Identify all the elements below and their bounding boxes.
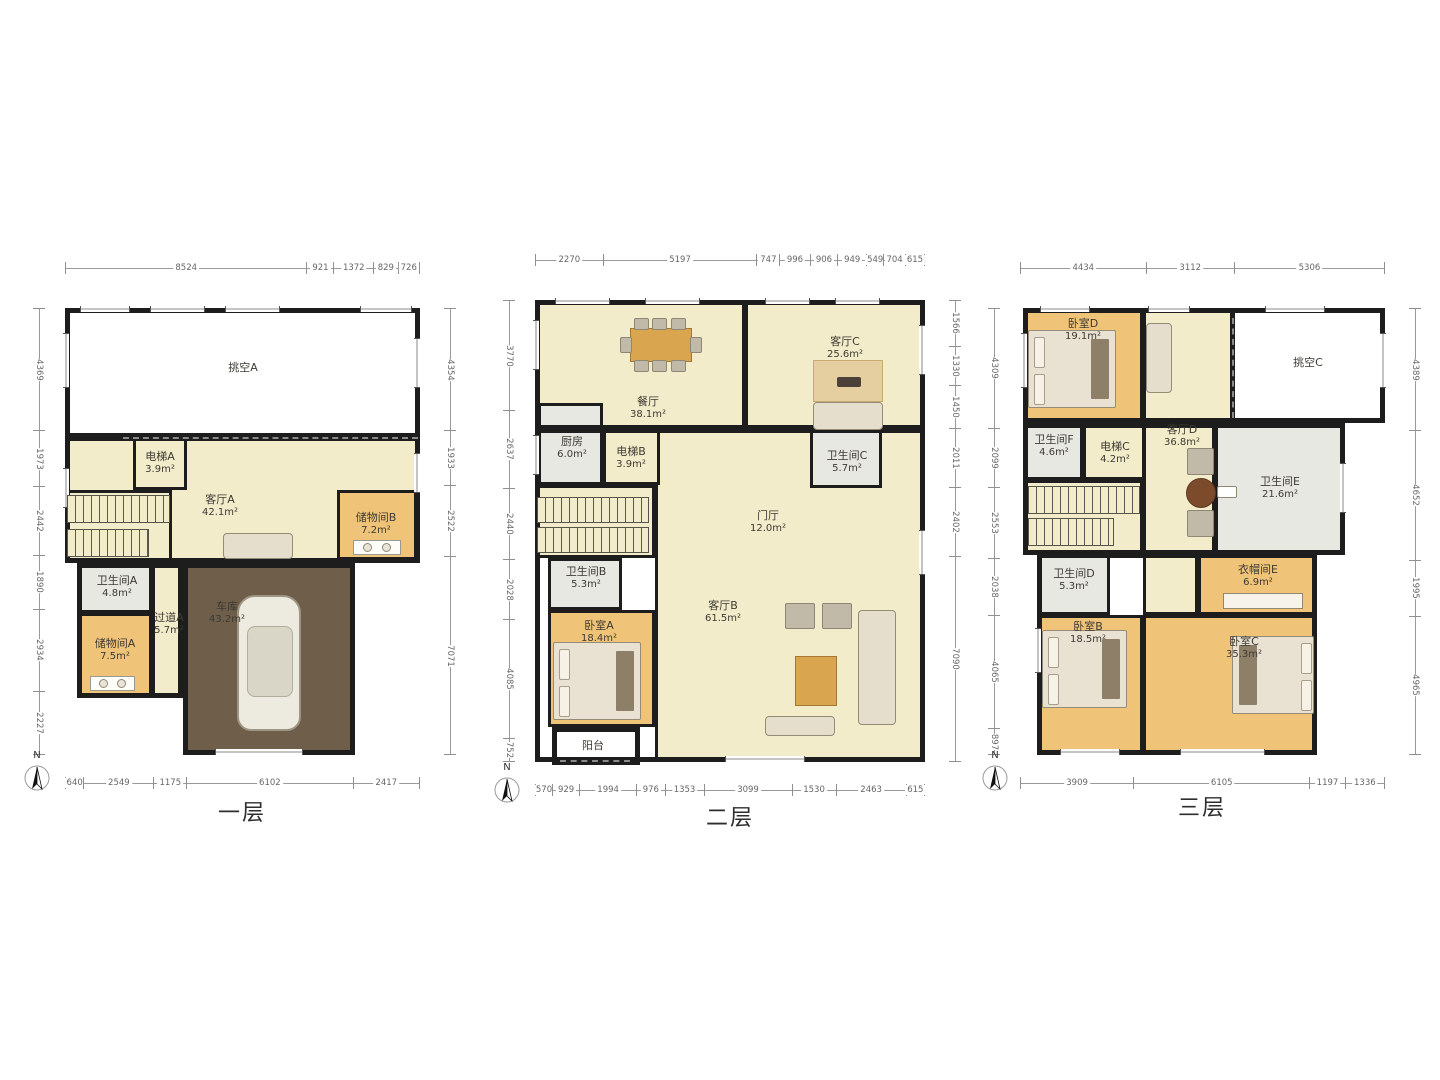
window-icon [215,749,303,755]
dimension-value: 2227 [32,712,46,734]
window-icon [1180,749,1265,755]
chair-icon [634,318,649,330]
dimension-segment: 5197 [603,254,757,266]
dimension-value: 1933 [443,447,457,469]
window-icon [1060,749,1120,755]
car-icon [237,595,301,731]
pillow-icon [559,686,570,717]
dimension-value: 4065 [987,661,1001,683]
floor-title-2: 二层 [706,800,754,832]
room-bath-c [810,428,882,488]
bench-icon [765,716,835,736]
dimension-value: 2402 [948,511,962,533]
dimension-strip-top: 22705197747996906949549704615 [535,254,925,266]
armchair-icon [785,603,815,629]
window-icon [765,298,810,304]
window-icon [1035,628,1041,673]
room-bath-d [1037,553,1110,615]
dimension-value: 747 [758,255,778,265]
armchair-icon [1187,448,1214,475]
room-bath-f [1023,423,1083,480]
dimension-value: 2417 [373,778,399,788]
table-top-icon [630,328,692,362]
dimension-segment: 4434 [1020,262,1146,274]
dimension-segment: 726 [398,262,420,274]
window-icon [1040,306,1090,312]
dimension-value: 5197 [667,255,693,265]
bed-icon [1028,330,1116,408]
dimension-segment: 2637 [503,410,515,487]
dimension-segment: 2038 [988,558,1000,615]
dimension-value: 3909 [1064,778,1090,788]
dimension-segment: 6102 [186,777,352,789]
floor-title-1: 一层 [218,795,266,827]
dimension-segment: 549 [866,254,883,266]
dimension-value: 2442 [32,510,46,532]
dimension-value: 1450 [948,396,962,418]
washer-icon [353,540,401,555]
dimension-segment: 1336 [1345,777,1385,789]
window-icon [414,338,420,388]
dimension-value: 976 [641,785,661,795]
bed-icon [553,642,641,720]
dimension-value: 829 [376,263,396,273]
armchair-icon [1187,510,1214,537]
dimension-segment: 2270 [535,254,603,266]
dimension-value: 3099 [735,785,761,795]
dimension-value: 949 [842,255,862,265]
dimension-strip-left: 37702637244020284085752 [503,300,515,762]
room-corridor-a [152,563,183,698]
dimension-segment: 4389 [1409,308,1421,430]
dimension-segment: 2028 [503,559,515,619]
dimension-segment: 2402 [949,487,961,557]
room-elevator-b [603,428,660,485]
pillow-icon [1048,674,1059,705]
pillow-icon [1301,680,1312,711]
dining-table-icon [620,318,700,370]
chair-icon [671,360,686,372]
dimension-value: 3112 [1177,263,1203,273]
dimension-segment: 704 [883,254,905,266]
dimension-segment: 1995 [1409,560,1421,616]
wardrobe-icon [1223,593,1303,609]
compass-circle-icon [492,773,522,807]
dimension-segment: 615 [905,254,925,266]
dimension-value: 1353 [672,785,698,795]
chair-icon [690,337,702,353]
dimension-value: 2522 [443,510,457,532]
dimension-segment: 2522 [444,485,456,556]
dimension-value: 1994 [595,785,621,795]
chair-icon [652,318,667,330]
bed-icon [1232,636,1314,714]
dimension-segment: 7090 [949,556,961,762]
window-icon [1021,333,1027,388]
window-icon [360,306,412,312]
dimension-value: 1995 [1408,577,1422,599]
window-icon [919,530,925,575]
stairs-icon [1028,518,1114,546]
north-compass-icon: N [492,762,522,810]
chair-icon [620,337,632,353]
pillow-icon [1301,643,1312,674]
dimension-value: 5306 [1297,263,1323,273]
dimension-value: 2553 [987,512,1001,534]
dimension-segment: 615 [906,784,925,796]
blanket-icon [616,651,634,711]
washer-icon [90,676,135,691]
dimension-segment: 7071 [444,556,456,755]
dimension-segment: 1197 [1309,777,1344,789]
dimension-segment: 4354 [444,308,456,430]
pillow-icon [1034,374,1045,405]
window-icon [919,325,925,375]
blanket-icon [1239,645,1257,705]
window-icon [225,306,280,312]
dimension-value: 3770 [502,345,516,367]
stairs-icon [1028,486,1140,514]
room-void-c [1232,308,1385,423]
dimension-value: 4354 [443,359,457,381]
dimension-strip-left: 436919732442189029342227 [33,308,45,755]
window-icon [533,435,539,475]
compass-circle-icon [980,761,1010,795]
dimension-segment: 1530 [792,784,836,796]
dimension-value: 921 [310,263,330,273]
dimension-value: 2637 [502,439,516,461]
tv-rug-icon [813,360,883,402]
floor-plan-3: 卧室D19.1m²挑空C客厅D36.8m²卫生间F4.6m²电梯C4.2m²卫生… [1020,308,1385,755]
floor-plan-2: 餐厅38.1m²客厅C25.6m²客厅B61.5m²厨房6.0m²电梯B3.9m… [535,300,925,762]
dimension-strip-right: 4389465219954965 [1409,308,1421,755]
dimension-value: 929 [556,785,576,795]
dimension-segment: 1933 [444,430,456,485]
dimension-value: 615 [905,255,925,265]
coffee-table-icon [795,656,837,706]
dimension-segment: 921 [306,262,333,274]
dimension-segment: 2463 [836,784,906,796]
dimension-value: 6105 [1209,778,1235,788]
floor-title-3: 三层 [1178,790,1226,822]
dimension-segment: 829 [373,262,397,274]
dimension-segment: 1372 [333,262,373,274]
sofa-set-icon [750,598,900,738]
sofa-icon [1146,323,1172,393]
north-label: N [980,750,1010,761]
dimension-strip-bottom: 57092919949761353309915302463615 [535,784,925,796]
dimension-value: 2270 [557,255,583,265]
open-boundary-dash [560,760,630,762]
dimension-value: 2463 [858,785,884,795]
dimension-value: 906 [814,255,834,265]
dimension-strip-top: 443431125306 [1020,262,1385,274]
dimension-segment: 4965 [1409,616,1421,755]
room-bath-b [548,558,622,610]
dimension-value: 2549 [106,778,132,788]
dimension-value: 1890 [32,572,46,594]
dimension-segment: 1330 [949,346,961,385]
window-icon [1340,463,1346,513]
sofa-icon [223,533,293,559]
bed-icon [1042,630,1127,708]
room-hall-3 [1143,553,1198,615]
dimension-value: 1330 [948,355,962,377]
armchair-icon [822,603,852,629]
blanket-icon [1091,339,1109,399]
dimension-segment: 747 [756,254,779,266]
dimension-segment: 1450 [949,385,961,428]
dimension-segment: 1890 [33,555,45,609]
dimension-value: 2011 [948,447,962,469]
dimension-value: 1175 [157,778,183,788]
room-elevator-a [133,436,187,490]
dimension-segment: 2011 [949,428,961,487]
dimension-value: 7090 [948,648,962,670]
north-compass-icon: N [980,750,1010,798]
window-icon [1148,306,1190,312]
window-icon [80,306,130,312]
dimension-value: 4965 [1408,675,1422,697]
window-icon [1380,333,1386,388]
car-roof-icon [247,626,292,697]
dimension-segment: 1566 [949,300,961,346]
window-icon [725,756,805,762]
dimension-value: 1336 [1352,778,1378,788]
window-icon [645,298,700,304]
room-void-a [65,308,420,438]
dimension-value: 996 [785,255,805,265]
window-icon [150,306,205,312]
dimension-segment: 3099 [704,784,792,796]
dimension-segment: 3112 [1146,262,1234,274]
dimension-value: 2934 [32,640,46,662]
dimension-segment: 4065 [988,615,1000,728]
dimension-value: 726 [399,263,419,273]
dimension-value: 897 [987,734,1001,750]
dimension-value: 4085 [502,668,516,690]
dimension-segment: 2934 [33,609,45,692]
dimension-value: 8524 [173,263,199,273]
chair-icon [671,318,686,330]
dimension-value: 2038 [987,576,1001,598]
tv-icon [837,377,861,387]
blanket-icon [1102,639,1120,699]
compass-circle-icon [22,761,52,795]
dimension-value: 6102 [257,778,283,788]
dimension-segment: 2549 [83,777,153,789]
window-icon [414,453,420,493]
dimension-segment: 1175 [153,777,186,789]
dimension-strip-bottom: 3909610511971336 [1020,777,1385,789]
sofa-icon [858,610,896,725]
dimension-segment: 8524 [65,262,306,274]
dimension-value: 4369 [32,359,46,381]
dimension-segment: 3770 [503,300,515,410]
dimension-value: 2099 [987,447,1001,469]
dimension-value: 752 [502,742,516,758]
dimension-segment: 2553 [988,487,1000,558]
pillow-icon [1034,337,1045,368]
dimension-segment: 996 [779,254,809,266]
dimension-value: 615 [905,785,925,795]
pillow-icon [1048,637,1059,668]
dimension-value: 1372 [341,263,367,273]
dimension-value: 2028 [502,579,516,601]
chair-icon [634,360,649,372]
dimension-value: 4389 [1408,359,1422,381]
window-icon [835,298,880,304]
dimension-value: 7071 [443,645,457,667]
north-compass-icon: N [22,750,52,798]
north-label: N [492,762,522,773]
dimension-segment: 2442 [33,486,45,555]
room-bath-a [78,563,152,613]
dimension-value: 1530 [801,785,827,795]
dimension-value: 640 [65,778,85,788]
open-boundary-dash [1232,318,1234,418]
dimension-segment: 6105 [1133,777,1309,789]
dimension-segment: 2099 [988,428,1000,487]
dimension-value: 1197 [1315,778,1341,788]
dimension-segment: 5306 [1234,262,1385,274]
window-icon [533,320,539,370]
dimension-segment: 2417 [353,777,420,789]
stairs-icon [537,527,649,553]
dimension-segment: 640 [65,777,83,789]
dimension-strip-right: 156613301450201124027090 [949,300,961,762]
dimension-value: 4434 [1070,263,1096,273]
dimension-value: 1973 [32,448,46,470]
dimension-strip-right: 4354193325227071 [444,308,456,755]
floorplan-canvas: 挑空A客厅A42.1m²电梯A3.9m²储物间B7.2m²卫生间A4.8m²过道… [0,0,1440,1080]
room-kitchen [538,403,603,485]
dimension-segment: 4652 [1409,430,1421,560]
basin-icon [1217,486,1237,498]
dimension-segment: 929 [552,784,579,796]
dimension-segment: 949 [837,254,866,266]
room-elevator-c [1083,423,1145,480]
stairs-icon [537,497,649,523]
dimension-value: 4652 [1408,485,1422,507]
round-table-set-icon [1185,448,1215,536]
window-icon [63,333,69,388]
dimension-value: 4309 [987,358,1001,380]
dimension-segment: 906 [810,254,838,266]
dimension-segment: 4309 [988,308,1000,428]
stairs-icon [67,529,149,557]
dimension-segment: 570 [535,784,552,796]
dimension-segment: 1353 [665,784,704,796]
floor-plan-1: 挑空A客厅A42.1m²电梯A3.9m²储物间B7.2m²卫生间A4.8m²过道… [65,308,420,755]
dimension-segment: 2227 [33,691,45,755]
dimension-value: 704 [884,255,904,265]
dimension-strip-left: 43092099255320384065897 [988,308,1000,755]
dimension-strip-top: 85249211372829726 [65,262,420,274]
dimension-segment: 4085 [503,619,515,738]
dimension-segment: 976 [636,784,664,796]
sofa-icon [813,402,883,430]
dimension-segment: 4369 [33,308,45,430]
dimension-segment: 3909 [1020,777,1133,789]
window-icon [555,298,610,304]
dimension-segment: 2440 [503,488,515,560]
dimension-strip-bottom: 6402549117561022417 [65,777,420,789]
stairs-icon [67,495,170,523]
dimension-segment: 752 [503,738,515,762]
dimension-segment: 1973 [33,430,45,486]
dimension-value: 2440 [502,513,516,535]
open-boundary-dash [123,437,418,439]
round-table-icon [1186,478,1216,508]
pillow-icon [559,649,570,680]
window-icon [1265,306,1325,312]
dimension-value: 1566 [948,313,962,335]
chair-icon [652,360,667,372]
dimension-segment: 1994 [579,784,636,796]
north-label: N [22,750,52,761]
